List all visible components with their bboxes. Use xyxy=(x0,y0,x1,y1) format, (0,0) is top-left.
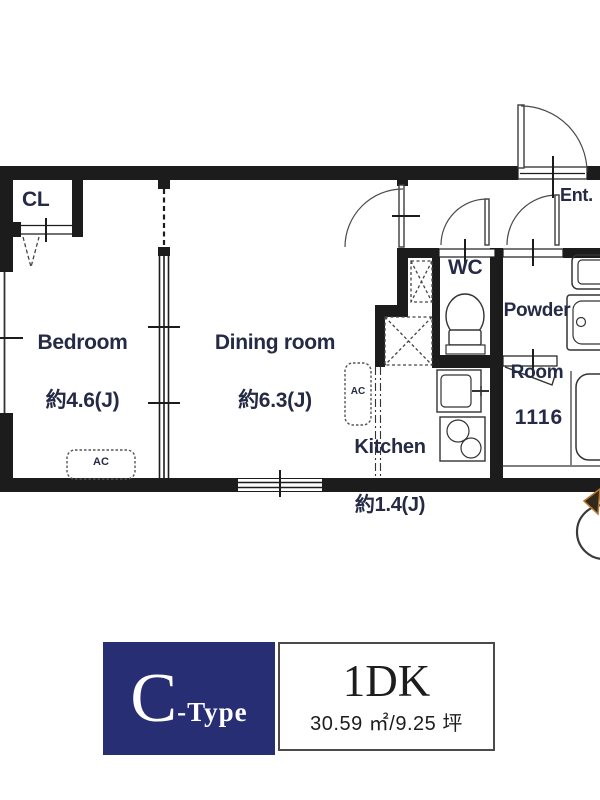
kitchen-recess-wall-v xyxy=(375,317,385,367)
kitchen-size: 約1.4(J) xyxy=(338,491,442,520)
powder-room-name-line2: Room xyxy=(498,357,576,388)
powder-door-leaf xyxy=(555,195,559,245)
ac-label-kitchen: AC xyxy=(344,386,372,397)
floor-plan-page: CL Bedroom 約4.6(J) Dining room 約6.3(J) K… xyxy=(0,0,600,800)
partition-stub-mid xyxy=(158,247,170,256)
powder-room-label: Powder Room xyxy=(498,264,576,419)
type-badge: C-Type xyxy=(103,642,275,755)
dining-room-name: Dining room xyxy=(195,328,355,357)
powder-room-name-line1: Powder xyxy=(498,295,576,326)
layout-type-label: 1DK xyxy=(343,658,431,705)
closet-folding-door xyxy=(23,237,39,267)
area-label: 30.59 ㎡/9.25 坪 xyxy=(310,707,463,736)
drain-icon xyxy=(577,318,586,327)
partition-stub-top xyxy=(158,180,170,189)
top-wall-right xyxy=(587,166,600,180)
bathtub-icon xyxy=(576,374,600,460)
wc-door-leaf xyxy=(485,199,489,245)
bedroom-size: 約4.6(J) xyxy=(10,386,155,415)
kitchen-counter xyxy=(437,370,489,461)
closet-label: CL xyxy=(22,188,49,212)
entrance-door-leaf xyxy=(518,105,524,168)
type-suffix: -Type xyxy=(177,697,248,727)
room-partition xyxy=(160,189,169,478)
floor-plan: CL Bedroom 約4.6(J) Dining room 約6.3(J) K… xyxy=(0,0,600,600)
type-info-box: 1DK 30.59 ㎡/9.25 坪 xyxy=(278,642,495,751)
dining-room-label: Dining room 約6.3(J) xyxy=(195,299,355,444)
closet-side-stub xyxy=(0,222,21,237)
entrance-label: Ent. xyxy=(560,185,593,206)
wc-west-wall xyxy=(432,250,440,357)
type-card: C-Type 1DK 30.59 ㎡/9.25 坪 xyxy=(103,642,501,755)
hall-south-wall-c xyxy=(563,248,600,258)
ac-label-bedroom: AC xyxy=(67,456,135,468)
toilet-icon xyxy=(446,294,485,354)
kitchen-recess-wall-h xyxy=(375,305,408,317)
toilet-base xyxy=(446,345,485,354)
dining-door-arc xyxy=(345,189,403,247)
burner-icon xyxy=(447,420,469,442)
kitchen-sink-icon xyxy=(441,375,471,407)
bath-unit-size-label: 1116 xyxy=(504,406,574,430)
wc-label: WC xyxy=(448,256,482,280)
closet-right-wall xyxy=(72,180,83,237)
wc-door-arc xyxy=(441,199,487,245)
powder-door-arc xyxy=(507,195,557,245)
toilet-tank xyxy=(449,330,481,345)
type-letter: C xyxy=(130,660,177,737)
top-wall-left xyxy=(0,166,518,180)
kitchen-name: Kitchen xyxy=(338,433,442,462)
compass-icon xyxy=(577,489,600,559)
bedroom-name: Bedroom xyxy=(10,328,155,357)
burner-icon xyxy=(461,438,481,458)
bedroom-label: Bedroom 約4.6(J) xyxy=(10,299,155,444)
dining-room-size: 約6.3(J) xyxy=(195,386,355,415)
kitchen-label: Kitchen 約1.4(J) xyxy=(338,404,442,549)
